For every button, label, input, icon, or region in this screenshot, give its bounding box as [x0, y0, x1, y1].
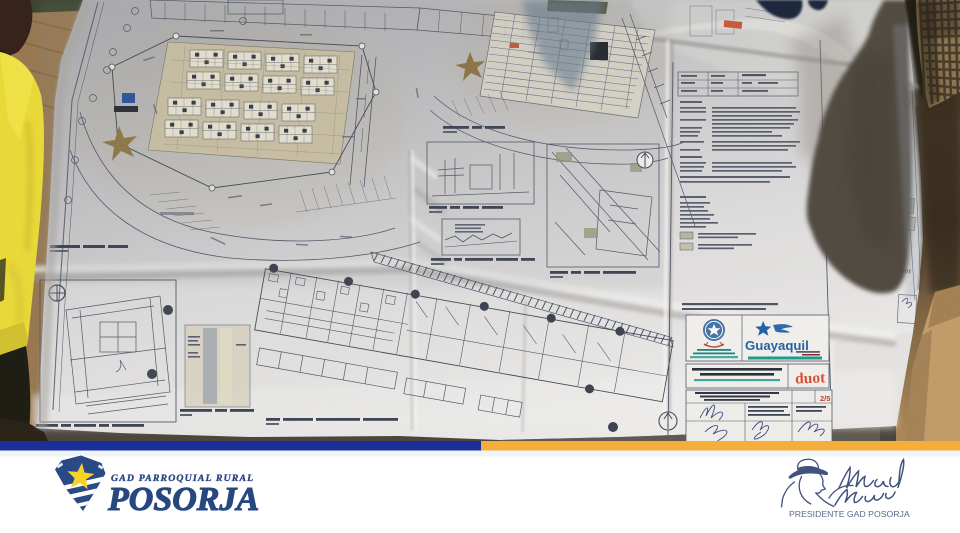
svg-text:POSORJA: POSORJA [107, 481, 259, 518]
svg-text:PRESIDENTE GAD POSORJA: PRESIDENTE GAD POSORJA [789, 509, 910, 519]
